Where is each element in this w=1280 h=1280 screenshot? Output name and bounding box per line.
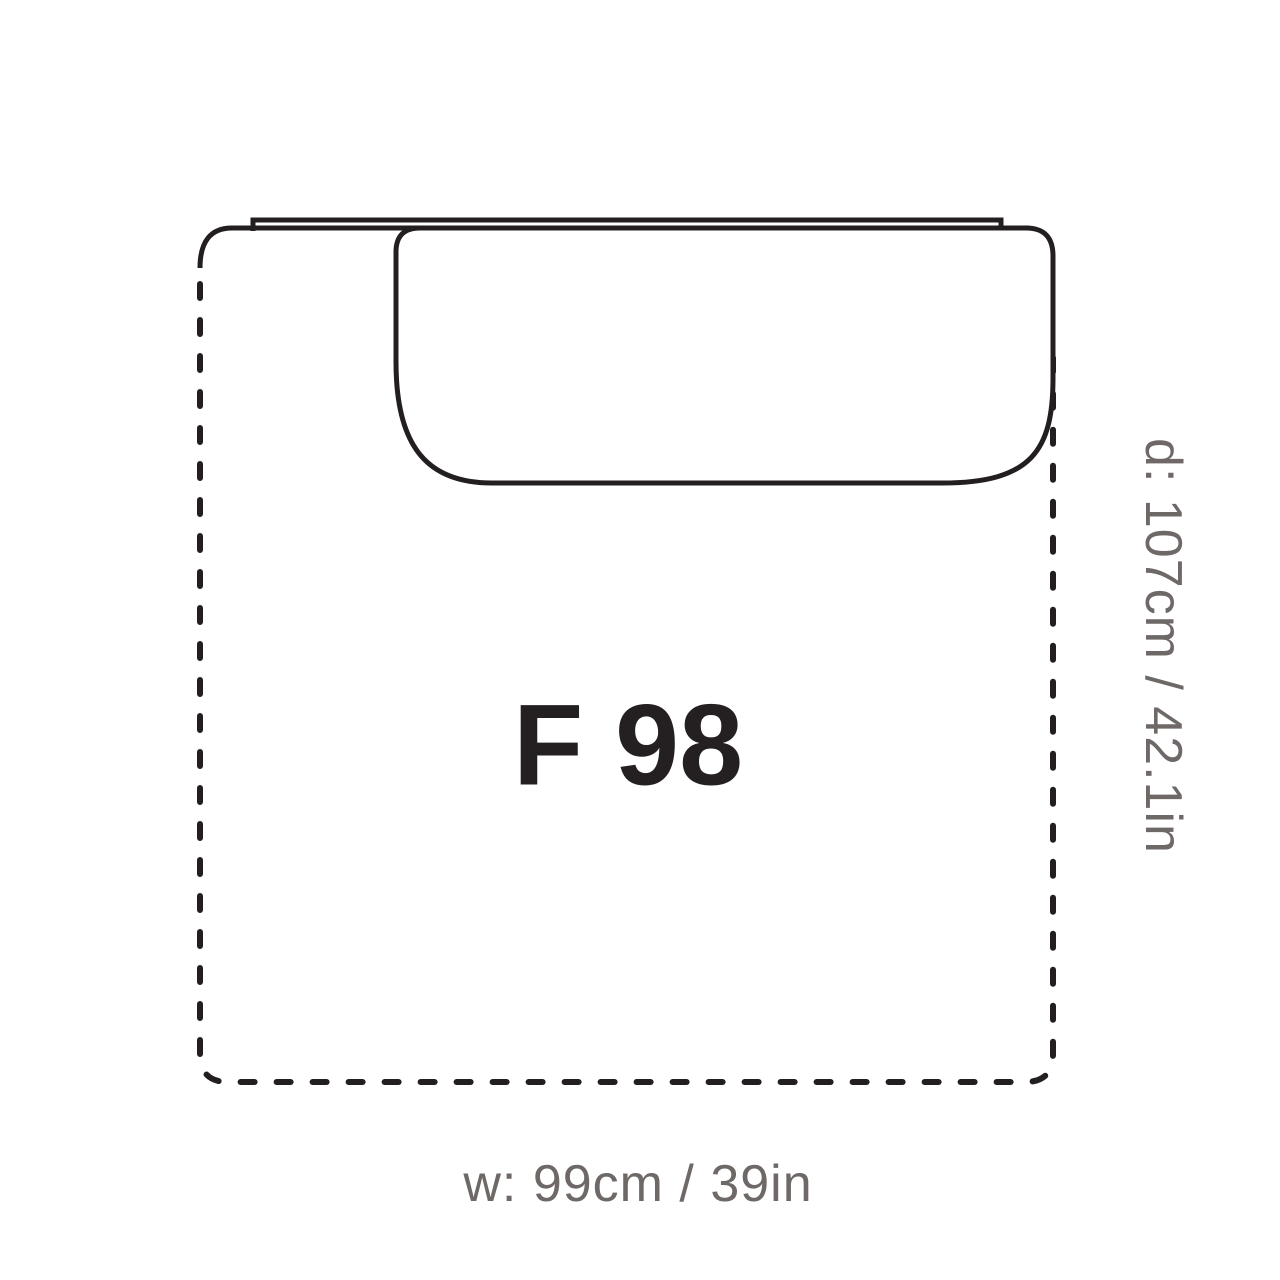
- depth-dimension-label: d: 107cm / 42.1in: [1137, 438, 1189, 854]
- module-name-label: F 98: [513, 689, 743, 804]
- seat-cushion-outline: [396, 228, 1053, 483]
- width-dimension-label: w: 99cm / 39in: [463, 1158, 812, 1210]
- module-spec-diagram: F 98 w: 99cm / 39in d: 107cm / 42.1in: [0, 0, 1280, 1280]
- sofa-module-top-view-drawing: [0, 0, 1280, 1280]
